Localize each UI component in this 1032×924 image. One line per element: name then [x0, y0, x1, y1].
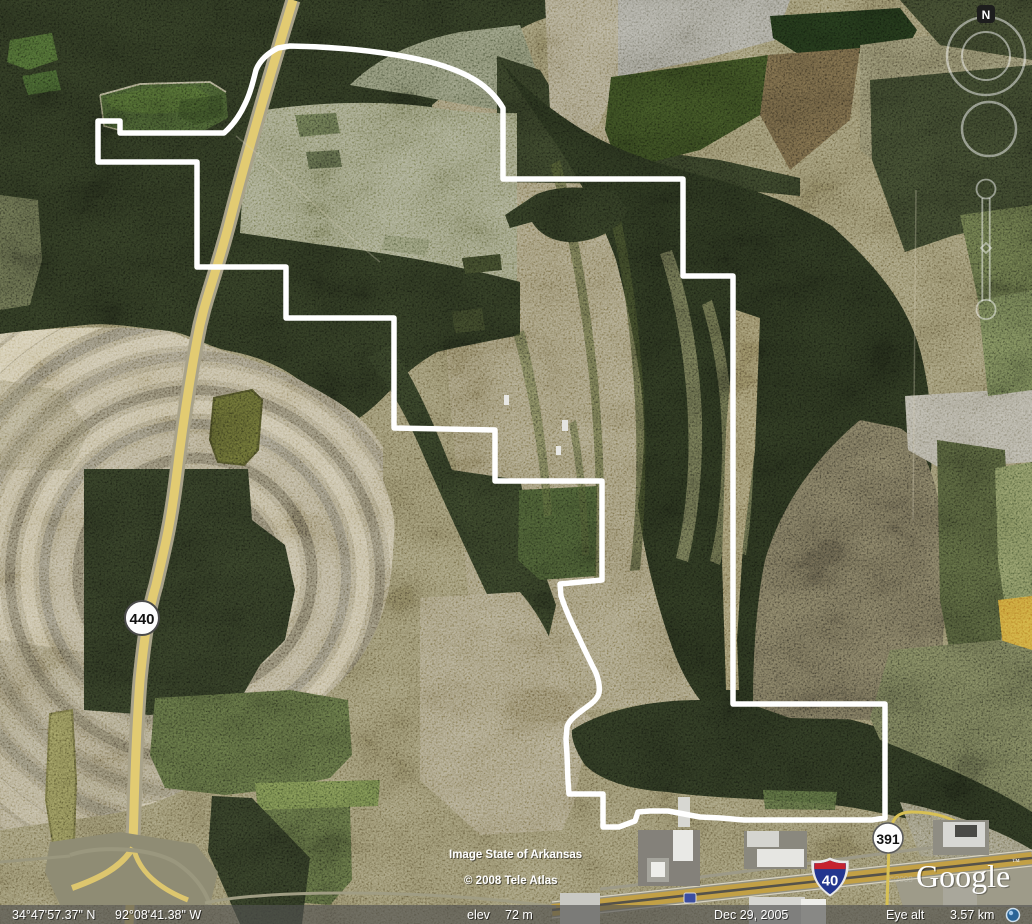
svg-text:Dec 29, 2005: Dec 29, 2005 [714, 908, 788, 922]
svg-text:elev: elev [467, 908, 491, 922]
svg-text:Eye alt: Eye alt [886, 908, 925, 922]
svg-text:92°08'41.38" W: 92°08'41.38" W [115, 908, 201, 922]
svg-text:391: 391 [876, 831, 900, 847]
svg-text:440: 440 [129, 611, 154, 628]
svg-text:Image State of Arkansas: Image State of Arkansas [449, 849, 582, 861]
svg-text:34°47'57.37" N: 34°47'57.37" N [12, 908, 95, 922]
svg-text:© 2008 Tele Atlas: © 2008 Tele Atlas [464, 875, 558, 887]
svg-text:3.57 km: 3.57 km [950, 908, 994, 922]
svg-text:72 m: 72 m [505, 908, 533, 922]
svg-text:™: ™ [1012, 857, 1020, 866]
svg-text:Google: Google [916, 858, 1010, 894]
svg-text:N: N [982, 8, 991, 22]
svg-text:©2008: ©2008 [889, 875, 913, 884]
svg-text:40: 40 [822, 873, 839, 889]
